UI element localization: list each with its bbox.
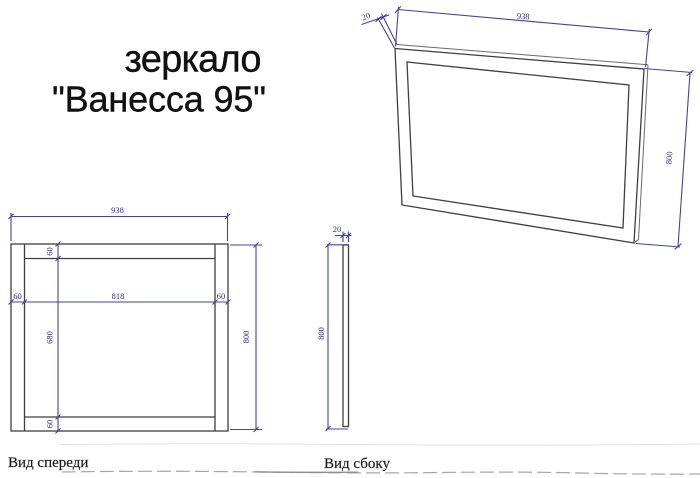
svg-text:680: 680 xyxy=(45,331,55,344)
svg-text:Вид спереди: Вид спереди xyxy=(8,455,88,471)
svg-text:60: 60 xyxy=(45,420,55,429)
svg-text:938: 938 xyxy=(516,10,530,21)
svg-text:60: 60 xyxy=(217,291,226,301)
svg-text:"Ванесса 95": "Ванесса 95" xyxy=(52,79,266,120)
svg-text:60: 60 xyxy=(13,291,22,301)
svg-text:20: 20 xyxy=(360,10,372,22)
svg-text:800: 800 xyxy=(664,151,675,164)
svg-text:Вид сбоку: Вид сбоку xyxy=(324,456,390,472)
svg-text:818: 818 xyxy=(112,291,125,301)
svg-text:800: 800 xyxy=(241,331,251,344)
svg-text:60: 60 xyxy=(45,247,55,256)
svg-text:зеркало: зеркало xyxy=(125,39,262,81)
svg-text:800: 800 xyxy=(316,327,326,340)
svg-text:20: 20 xyxy=(333,224,342,234)
svg-text:938: 938 xyxy=(111,205,124,215)
